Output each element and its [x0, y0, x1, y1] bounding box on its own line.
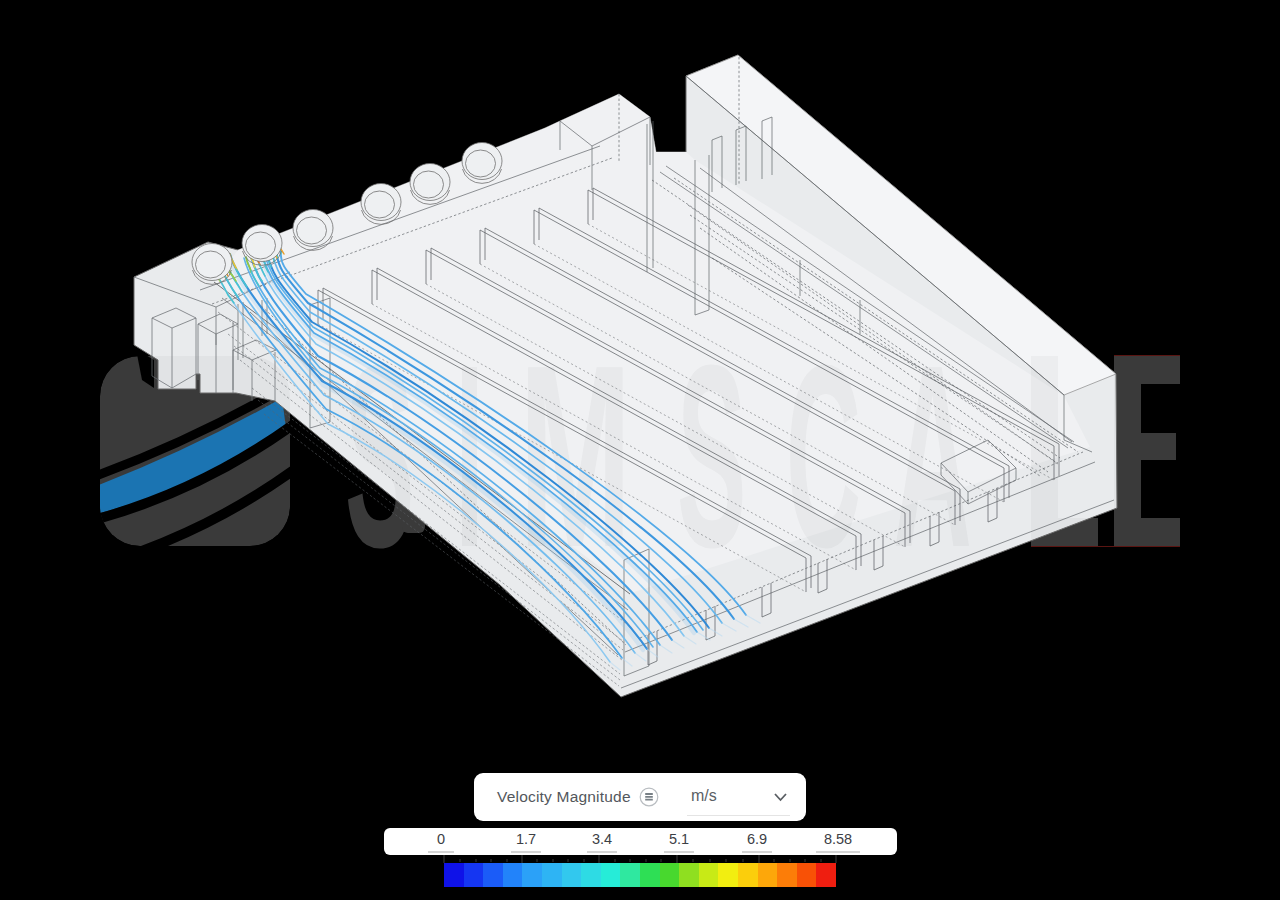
svg-text:A: A — [893, 310, 972, 601]
